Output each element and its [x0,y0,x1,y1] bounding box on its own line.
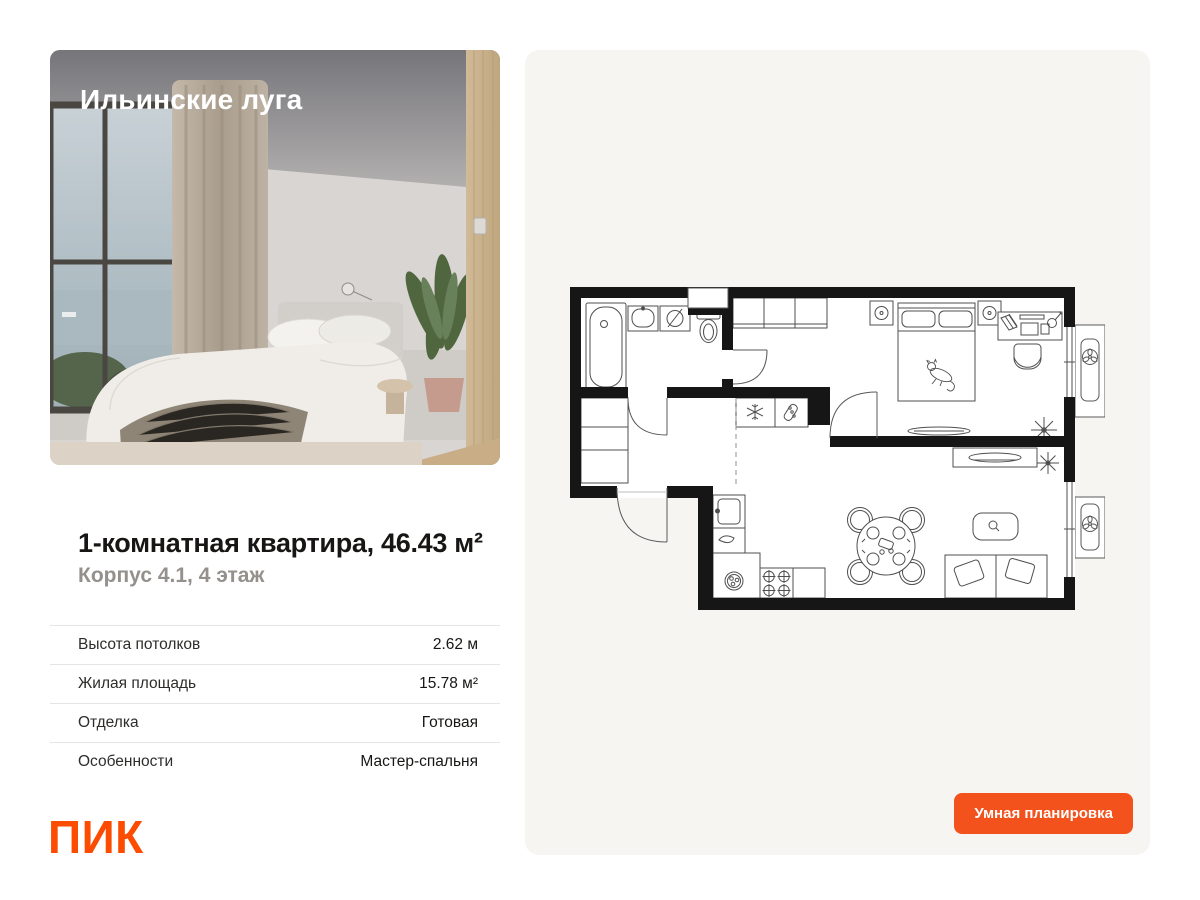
bed [898,303,975,401]
hall-closet-top [733,298,827,328]
project-name-overlay: Ильинские луга [80,84,302,116]
row-value: 15.78 м² [419,675,478,693]
table-row: Высота потолков 2.62 м [50,625,500,664]
bathroom-sink [628,306,658,331]
row-value: Мастер-спальня [360,753,478,771]
dining-set [848,508,925,585]
floor-plan [570,287,1105,610]
bathtub [586,303,626,391]
stove [760,568,793,598]
details-table: Высота потолков 2.62 м Жилая площадь 15.… [50,625,500,781]
listing-title: 1-комнатная квартира, 46.43 м² [78,528,508,559]
row-label: Высота потолков [78,636,200,654]
kitchen-sink [713,495,745,528]
row-label: Жилая площадь [78,675,196,693]
row-value: Готовая [422,714,478,732]
coffee-table [973,513,1018,540]
sofa [945,555,1047,598]
shelf [908,427,970,435]
tv-console [953,448,1037,467]
hall-wardrobe-left [581,398,628,483]
desk [998,312,1062,341]
washing-machine [660,306,690,331]
listing-photo: Ильинские луга [50,50,500,465]
listing-subtitle: Корпус 4.1, 4 этаж [78,564,508,588]
smart-plan-button[interactable]: Умная планировка [954,793,1133,834]
table-row: Особенности Мастер-спальня [50,742,500,781]
row-value: 2.62 м [433,636,478,654]
fridge-cabinet-row [736,398,808,427]
floorplan-panel: Умная планировка [525,50,1150,855]
light-switch [474,218,486,234]
kitchen-counter [793,568,825,598]
row-label: Особенности [78,753,173,771]
table-row: Отделка Готовая [50,703,500,742]
row-label: Отделка [78,714,139,732]
kitchen-cabinet [713,528,745,553]
pik-logo: ПИК [48,810,144,864]
water-heater [713,553,760,598]
table-row: Жилая площадь 15.78 м² [50,664,500,703]
